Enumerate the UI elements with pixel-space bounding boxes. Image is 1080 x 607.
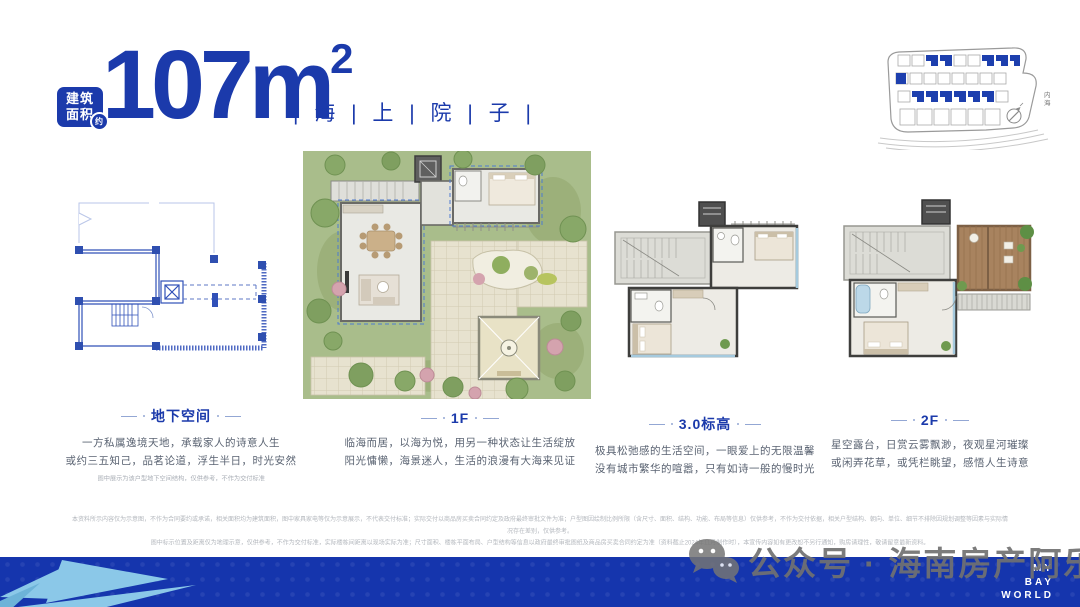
svg-text:海: 海 [1044, 98, 1051, 107]
basement-desc-line1: 一方私属逸境天地，承载家人的诗意人生 [61, 435, 301, 453]
section-level3: 3.0标高 极具松弛感的生活空间，一眼爱上的无限温馨 没有城市繁华的喧嚣，只有如… [580, 414, 830, 479]
bed-1f [489, 173, 535, 205]
section-title-level3: 3.0标高 [679, 414, 731, 434]
level3-desc-line2: 没有城市繁华的喧嚣，只有如诗一般的慢时光 [580, 461, 830, 479]
pavilion [479, 317, 539, 379]
section-basement: 地下空间 一方私属逸境天地，承载家人的诗意人生 或约三五知己，品茗论道，浮生半日… [61, 406, 301, 488]
dash-right [225, 416, 241, 417]
2f-desc-line1: 星空露台，日赏云雾飘渺，夜观星河璀璨 [815, 437, 1045, 455]
section-title-basement: 地下空间 [151, 406, 211, 426]
basement-floorplan [64, 183, 302, 391]
first-floor-plan [303, 151, 591, 399]
dash-left [121, 416, 137, 417]
project-name: | 海 | 上 | 院 | 子 | [293, 97, 536, 127]
sea-label: 内 [1044, 90, 1051, 99]
basement-desc-line2: 或约三五知己，品茗论道，浮生半日，时光安然 [61, 453, 301, 471]
section-2f: 2F 星空露台，日赏云雾飘渺，夜观星河璀璨 或闲弄花草，或凭栏眺望，感悟人生诗意 [815, 412, 1045, 473]
stair-band [331, 181, 419, 201]
section-title-1f: 1F [451, 410, 469, 426]
disclaimer-line1: 本资料所示内容仅为示意图，不作为合同要约或承诺，相关面积均为建筑面积，图中家具家… [72, 514, 1008, 537]
elevator-box [415, 156, 441, 182]
site-plan-roads [878, 130, 1048, 150]
roof-deck [957, 225, 1034, 291]
bed-2f [864, 322, 908, 354]
bed-upper [755, 232, 793, 260]
bay-logo-icon [0, 557, 210, 607]
elevator-box [922, 200, 950, 224]
wechat-icon [688, 538, 740, 584]
basement-note: 图中展示为该户型地下空间结构，仅供参考，不作为交付标准 [61, 473, 301, 482]
stair-terrace [615, 232, 711, 284]
stair-terrace [844, 226, 950, 280]
section-1f: 1F 临海而居，以海为悦，用另一种状态让生活绽放 阳光慵懒，海景迷人，生活的浪漫… [320, 410, 600, 471]
area-superscript: 2 [330, 35, 353, 82]
1f-desc-line1: 临海而居，以海为悦，用另一种状态让生活绽放 [320, 435, 600, 453]
area-badge-line1: 建筑 [57, 91, 103, 107]
watermark-text: 公众号 · 海南房产阿乐 [748, 537, 1080, 585]
basement-columns [75, 246, 266, 350]
level-3-floorplan [607, 196, 802, 362]
second-floor-plan [836, 196, 1036, 362]
elevator-box [699, 202, 725, 226]
area-badge: 建筑 面积 约 [57, 87, 103, 127]
bed-lower [633, 324, 671, 354]
1f-desc-line2: 阳光慵懒，海景迷人，生活的浪漫有大海来见证 [320, 453, 600, 471]
2f-desc-line2: 或闲弄花草，或凭栏眺望，感悟人生诗意 [815, 455, 1045, 473]
brand-line3: WORLD [1001, 589, 1054, 603]
wechat-watermark: 公众号 · 海南房产阿乐 [688, 537, 1080, 585]
site-plan-map: 内 海 [866, 42, 1056, 150]
section-title-2f: 2F [921, 412, 939, 428]
level3-desc-line1: 极具松弛感的生活空间，一眼爱上的无限温馨 [580, 443, 830, 461]
